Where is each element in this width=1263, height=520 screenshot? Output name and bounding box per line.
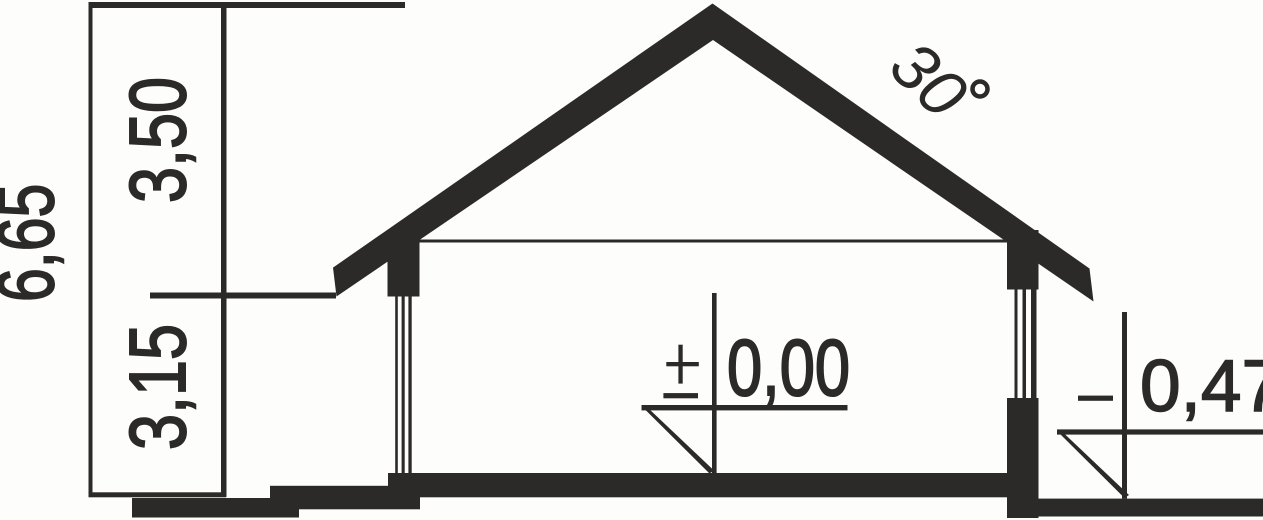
svg-text:0,47: 0,47: [1140, 346, 1263, 427]
svg-text:30: 30: [876, 27, 982, 133]
svg-text:3,15: 3,15: [114, 324, 203, 450]
svg-text:0,00: 0,00: [727, 324, 850, 413]
svg-text:3,50: 3,50: [114, 77, 203, 203]
svg-text:6,65: 6,65: [0, 184, 71, 302]
